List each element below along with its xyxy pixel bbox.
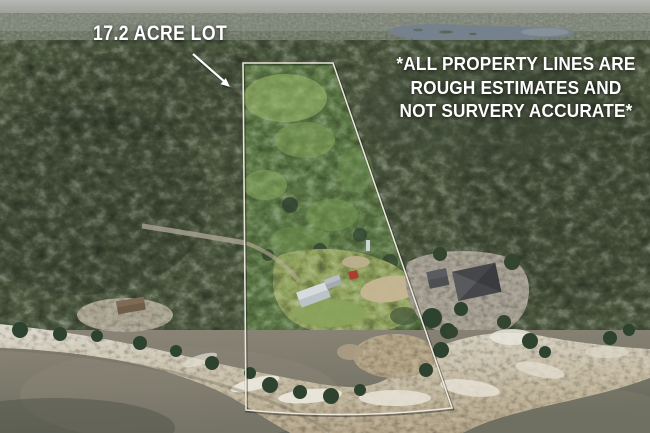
disclaimer-line: NOT SURVERY ACCURATE* <box>393 99 639 123</box>
lot-size-label: 17.2 ACRE LOT <box>93 22 227 46</box>
utility-pole <box>366 240 370 251</box>
disclaimer-line: *ALL PROPERTY LINES ARE <box>393 52 639 76</box>
aerial-photo: 17.2 ACRE LOT *ALL PROPERTY LINES ARE RO… <box>0 0 650 433</box>
disclaimer-line: ROUGH ESTIMATES AND <box>393 76 639 100</box>
disclaimer-note: *ALL PROPERTY LINES ARE ROUGH ESTIMATES … <box>393 52 639 123</box>
